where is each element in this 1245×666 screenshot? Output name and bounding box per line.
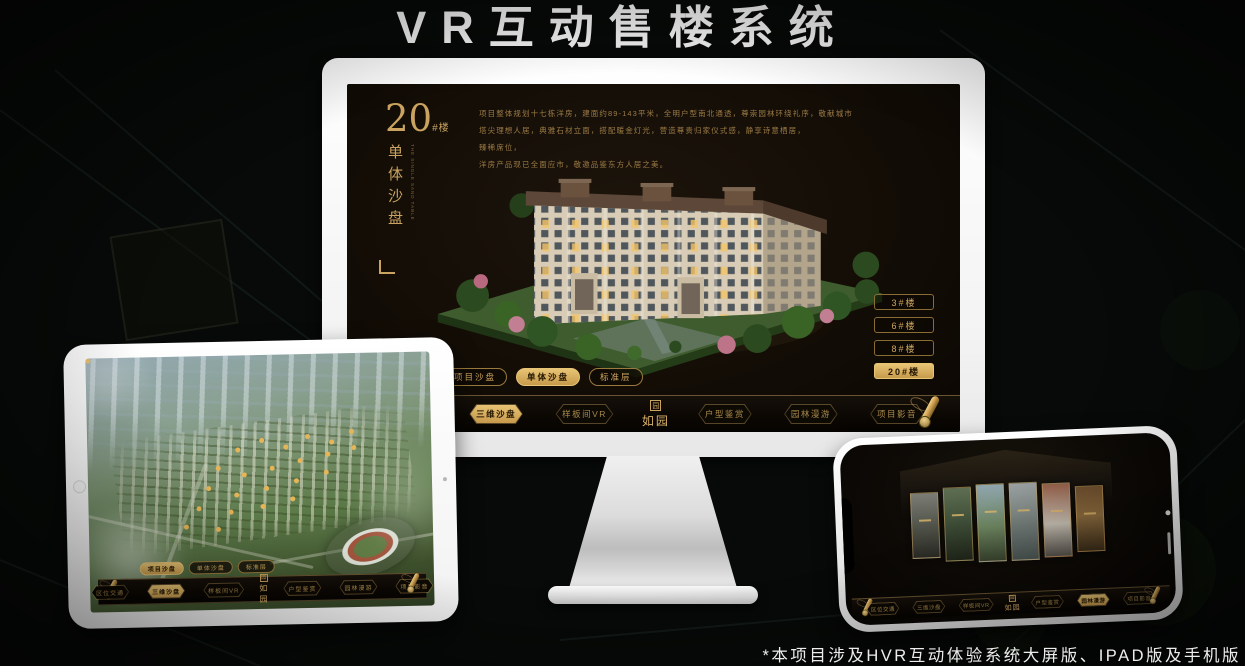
scroll-roll-icon[interactable] (912, 393, 946, 432)
tablet-screen: 项目沙盘 单体沙盘 标准层 区位交通 三维沙盘 样板间VR 园 如园 户型鉴赏 … (85, 351, 434, 612)
building-number-suffix: #楼 (432, 123, 450, 134)
gallery-panel[interactable] (976, 483, 1007, 562)
scene-gallery (910, 479, 1106, 565)
nav-item-3d-sandbox[interactable]: 三维沙盘 (144, 583, 188, 599)
camera-dot (443, 477, 447, 481)
nav-item-3d-sandbox[interactable]: 三维沙盘 (465, 404, 527, 424)
tablet-device: 项目沙盘 单体沙盘 标准层 区位交通 三维沙盘 样板间VR 园 如园 户型鉴赏 … (63, 337, 459, 629)
ipad-home-button[interactable] (73, 480, 86, 493)
brand-logo: 园 如园 (259, 573, 269, 604)
nav-item-floorplans[interactable]: 户型鉴赏 (280, 580, 324, 596)
building-subtitle: 单体沙盘 (385, 144, 406, 244)
nav-item-garden-tour[interactable]: 园林漫游 (780, 404, 842, 424)
floor-button-20[interactable]: 20#楼 (874, 363, 934, 379)
seal-icon: 园 (260, 573, 268, 581)
view-tab-group: 项目沙盘 单体沙盘 标准层 (140, 560, 275, 576)
seal-icon: 园 (650, 400, 661, 411)
gallery-panel[interactable] (943, 487, 974, 562)
nav-item-showroom-vr[interactable]: 样板间VR (956, 598, 997, 613)
tab-standard-floor[interactable]: 标准层 (238, 560, 275, 574)
brand-logo: 园 如园 (1004, 594, 1021, 613)
building-render (419, 142, 901, 398)
floor-button-group: 3#楼 6#楼 8#楼 20#楼 (874, 294, 934, 379)
brand-logo-text: 如园 (642, 412, 670, 429)
nav-item-3d-sandbox[interactable]: 三维沙盘 (910, 600, 949, 615)
gallery-panel[interactable] (1042, 482, 1073, 557)
gallery-panel[interactable] (1075, 485, 1106, 552)
tab-project-sandbox[interactable]: 项目沙盘 (140, 562, 184, 576)
nav-item-garden-tour[interactable]: 园林漫游 (1074, 593, 1113, 608)
floor-button-6[interactable]: 6#楼 (874, 317, 934, 333)
floor-button-3[interactable]: 3#楼 (874, 294, 934, 310)
floor-button-8[interactable]: 8#楼 (874, 340, 934, 356)
nav-item-garden-tour[interactable]: 园林漫游 (336, 579, 380, 595)
phone-screen: 区位交通 三维沙盘 样板间VR 园 如园 户型鉴赏 园林漫游 项目影音 (839, 432, 1176, 626)
building-number: 20 (385, 97, 432, 140)
footnote-text: *本项目涉及HVR互动体验系统大屏版、IPAD版及手机版 (762, 642, 1241, 666)
seal-icon: 园 (1009, 594, 1016, 601)
nav-item-floorplans[interactable]: 户型鉴赏 (1028, 595, 1067, 610)
nav-item-showroom-vr[interactable]: 样板间VR (551, 404, 618, 424)
gallery-panel[interactable] (1009, 482, 1040, 561)
headline-bracket-ornament (379, 260, 395, 274)
tab-standard-floor[interactable]: 标准层 (589, 368, 643, 386)
brand-logo-text: 如园 (259, 582, 268, 604)
tab-building-sandbox[interactable]: 单体沙盘 (516, 368, 580, 386)
phone-device: 区位交通 三维沙盘 样板间VR 园 如园 户型鉴赏 园林漫游 项目影音 (832, 425, 1184, 633)
scroll-roll-icon[interactable] (402, 571, 424, 596)
phone-navbar: 区位交通 三维沙盘 样板间VR 园 如园 户型鉴赏 园林漫游 项目影音 (852, 585, 1171, 620)
poster: VR互动售楼系统 20#楼 单体沙盘 THE SINGLE SAND TABLE… (0, 0, 1245, 666)
brand-logo: 园 如园 (642, 400, 670, 429)
scroll-roll-icon[interactable] (1145, 585, 1165, 608)
nav-item-floorplans[interactable]: 户型鉴赏 (694, 404, 756, 424)
view-tab-group: 项目沙盘 单体沙盘 标准层 (443, 368, 643, 386)
description-line: 项目整体规划十七栋洋房，建面约89-143平米，全明户型南北通透，尊崇园林环绕礼… (479, 108, 881, 121)
page-title: VR互动售楼系统 (0, 0, 1245, 56)
monitor-stand-base (548, 586, 758, 604)
gallery-panel[interactable] (910, 492, 941, 559)
tab-building-sandbox[interactable]: 单体沙盘 (189, 561, 233, 575)
brand-logo-text: 如园 (1004, 602, 1020, 613)
phone-notch (840, 498, 855, 574)
tablet-navbar: 区位交通 三维沙盘 样板间VR 园 如园 户型鉴赏 园林漫游 项目影音 (98, 573, 426, 606)
building-subtitle-en: THE SINGLE SAND TABLE (410, 144, 415, 236)
nav-item-showroom-vr[interactable]: 样板间VR (200, 582, 248, 598)
description-line: 塔尖理想人居，典雅石材立面，搭配暖金灯光，营造尊贵归家仪式感，静享诗意栖居， (479, 125, 881, 138)
